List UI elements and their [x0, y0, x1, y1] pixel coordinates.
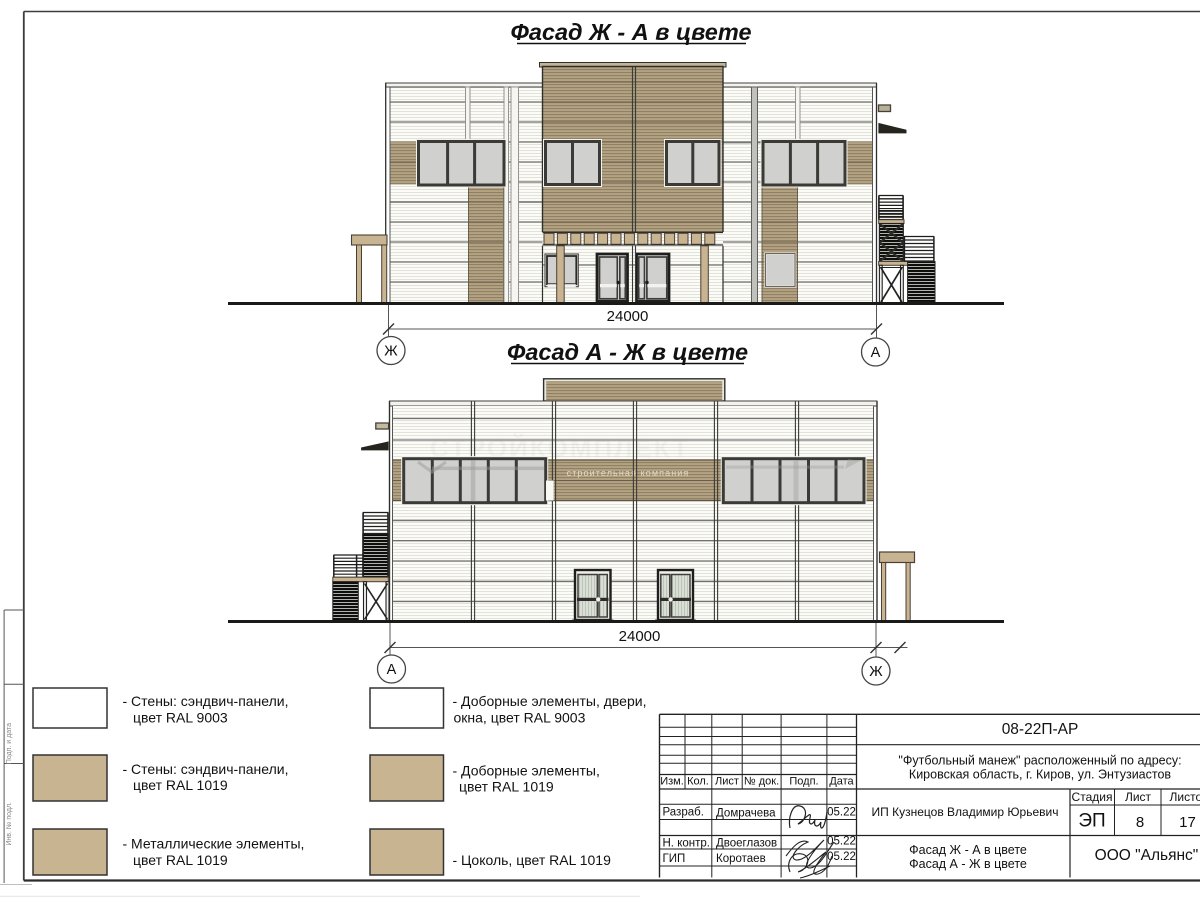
svg-text:08-22П-АР: 08-22П-АР: [1002, 721, 1079, 738]
svg-text:Кировская область, г. Киров, у: Кировская область, г. Киров, ул. Энтузиа…: [909, 767, 1171, 781]
svg-text:"Футбольный манеж" расположенн: "Футбольный манеж" расположенный по адре…: [898, 754, 1181, 768]
svg-text:№ док.: № док.: [744, 776, 779, 788]
svg-text:Инв. № подл.: Инв. № подл.: [6, 802, 13, 846]
svg-text:24000: 24000: [619, 628, 661, 645]
svg-text:17: 17: [1179, 814, 1196, 831]
svg-text:ИП Кузнецов Владимир Юрьевич: ИП Кузнецов Владимир Юрьевич: [872, 805, 1059, 819]
svg-text:Фасад Ж - А в цвете: Фасад Ж - А в цвете: [909, 843, 1027, 857]
svg-text:8: 8: [1136, 814, 1144, 831]
svg-text:цвет RAL 1019: цвет RAL 1019: [133, 777, 228, 793]
svg-text:Лист: Лист: [1125, 790, 1152, 804]
svg-text:окна, цвет RAL 9003: окна, цвет RAL 9003: [454, 710, 586, 726]
svg-text:цвет RAL 1019: цвет RAL 1019: [459, 779, 554, 795]
svg-text:Ж: Ж: [384, 344, 398, 360]
svg-text:- Доборные элементы,: - Доборные элементы,: [453, 763, 600, 779]
svg-text:Стадия: Стадия: [1072, 790, 1113, 804]
svg-text:24000: 24000: [607, 308, 649, 325]
svg-text:Подп. и дата: Подп. и дата: [6, 723, 13, 764]
svg-text:Ж: Ж: [869, 664, 883, 680]
svg-text:- Стены: сэндвич-панели,: - Стены: сэндвич-панели,: [123, 761, 289, 777]
svg-text:- Металлические элементы,: - Металлические элементы,: [123, 836, 305, 852]
svg-text:ЭП: ЭП: [1078, 811, 1105, 832]
svg-text:- Стены: сэндвич-панели,: - Стены: сэндвич-панели,: [123, 693, 289, 709]
svg-text:Лист: Лист: [715, 776, 739, 788]
svg-text:Двоеглазов: Двоеглазов: [716, 838, 777, 850]
svg-text:Фасад Ж - А в цвете: Фасад Ж - А в цвете: [510, 19, 751, 45]
svg-text:А: А: [387, 662, 397, 678]
svg-text:цвет RAL 1019: цвет RAL 1019: [133, 852, 228, 868]
svg-text:Разраб.: Разраб.: [663, 807, 704, 819]
svg-text:Фасад А - Ж в цвете: Фасад А - Ж в цвете: [507, 339, 748, 365]
svg-text:А: А: [871, 345, 881, 361]
svg-text:05.22: 05.22: [827, 807, 856, 819]
svg-text:строительная компания: строительная компания: [567, 468, 690, 478]
svg-text:Н. контр.: Н. контр.: [663, 838, 710, 850]
svg-text:Кол.: Кол.: [687, 776, 709, 788]
svg-text:Изм.: Изм.: [660, 776, 684, 788]
svg-text:- Доборные элементы, двери,: - Доборные элементы, двери,: [453, 693, 647, 709]
svg-text:Коротаев: Коротаев: [716, 853, 766, 865]
svg-text:Домрачева: Домрачева: [716, 808, 776, 820]
svg-text:цвет RAL 9003: цвет RAL 9003: [133, 710, 228, 726]
svg-text:Подп.: Подп.: [789, 776, 818, 788]
svg-text:Дата: Дата: [829, 776, 854, 788]
svg-text:Фасад А - Ж в цвете: Фасад А - Ж в цвете: [909, 857, 1027, 871]
svg-text:Листов: Листов: [1170, 790, 1200, 804]
svg-text:- Цоколь, цвет RAL 1019: - Цоколь, цвет RAL 1019: [453, 852, 612, 868]
svg-text:ГИП: ГИП: [663, 853, 686, 865]
svg-text:ООО "Альянс": ООО "Альянс": [1095, 847, 1199, 864]
